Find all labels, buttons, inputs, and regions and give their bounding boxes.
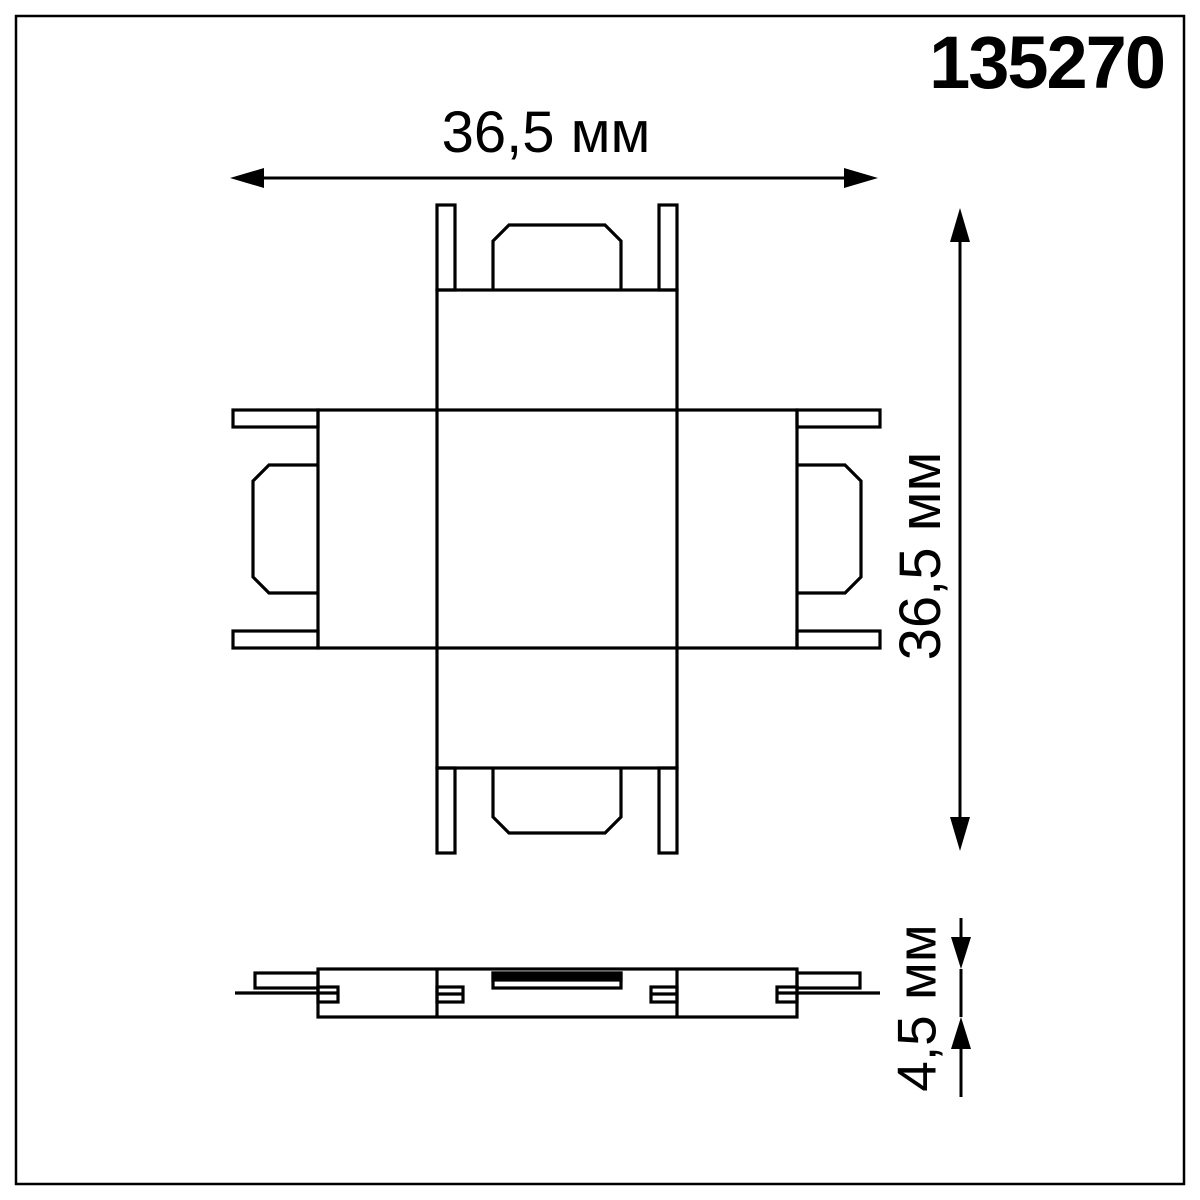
tab-bottom-left [437,768,455,853]
thickness-arrow-down [951,937,971,969]
side-tab-right [797,973,860,988]
tab-bottom-right [659,768,677,853]
height-arrow-top [950,208,970,242]
width-dimension [230,168,878,188]
plan-vertical-arm [437,290,677,768]
side-tab-left [255,973,318,988]
technical-drawing [0,0,1200,1200]
plug-top [493,225,621,290]
plug-bottom [493,768,621,833]
height-arrow-bottom [950,817,970,851]
tab-left-top [233,410,318,427]
width-arrow-right [844,168,878,188]
tab-right-top [797,410,880,427]
drawing-sheet: 135270 36,5 мм 36,5 мм 4,5 мм [0,0,1200,1200]
tab-top-right [659,205,677,290]
part-number: 135270 [929,26,1164,100]
height-dimension [950,208,970,851]
height-dimension-label: 36,5 мм [892,452,950,661]
plug-left [253,465,318,593]
plan-view-drawing [233,205,880,853]
side-contact-strip-top [493,973,621,980]
plug-right [797,465,861,593]
thickness-dimension-label: 4,5 мм [890,924,945,1091]
tab-left-bottom [233,631,318,648]
width-arrow-left [230,168,264,188]
tab-top-left [437,205,455,290]
plan-horizontal-arm [318,410,797,648]
width-dimension-label: 36,5 мм [442,104,651,162]
tab-right-bottom [797,631,880,648]
thickness-dimension [951,918,971,1097]
thickness-arrow-up [951,1017,971,1049]
sheet-border-frame [16,16,1184,1184]
side-view-drawing [235,969,880,1017]
